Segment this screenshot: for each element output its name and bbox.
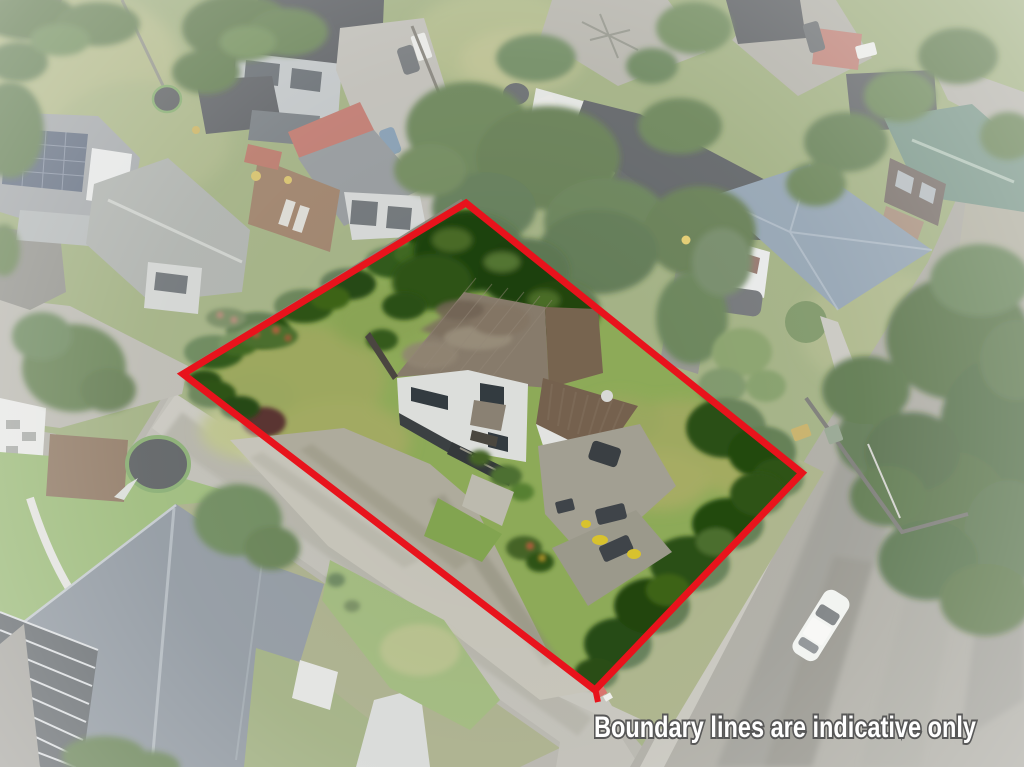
svg-text:Boundary lines are indicative: Boundary lines are indicative only bbox=[594, 711, 976, 744]
